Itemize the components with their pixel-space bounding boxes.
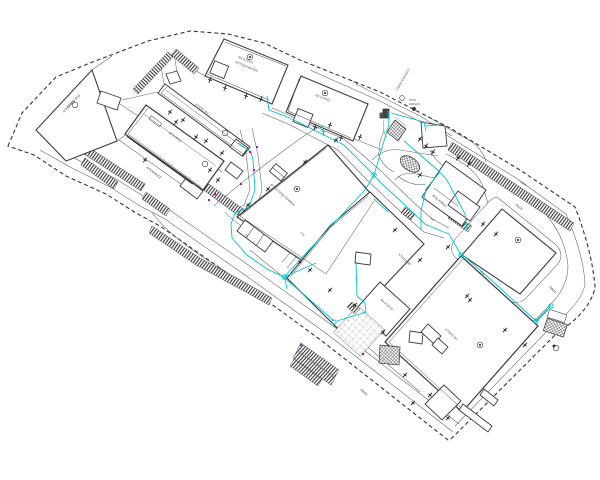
svg-text:ΕΙΣΟΔΟΥ: ΕΙΣΟΔΟΥ xyxy=(409,102,421,106)
svg-text:ΠΥΛΗ: ΠΥΛΗ xyxy=(409,98,416,102)
